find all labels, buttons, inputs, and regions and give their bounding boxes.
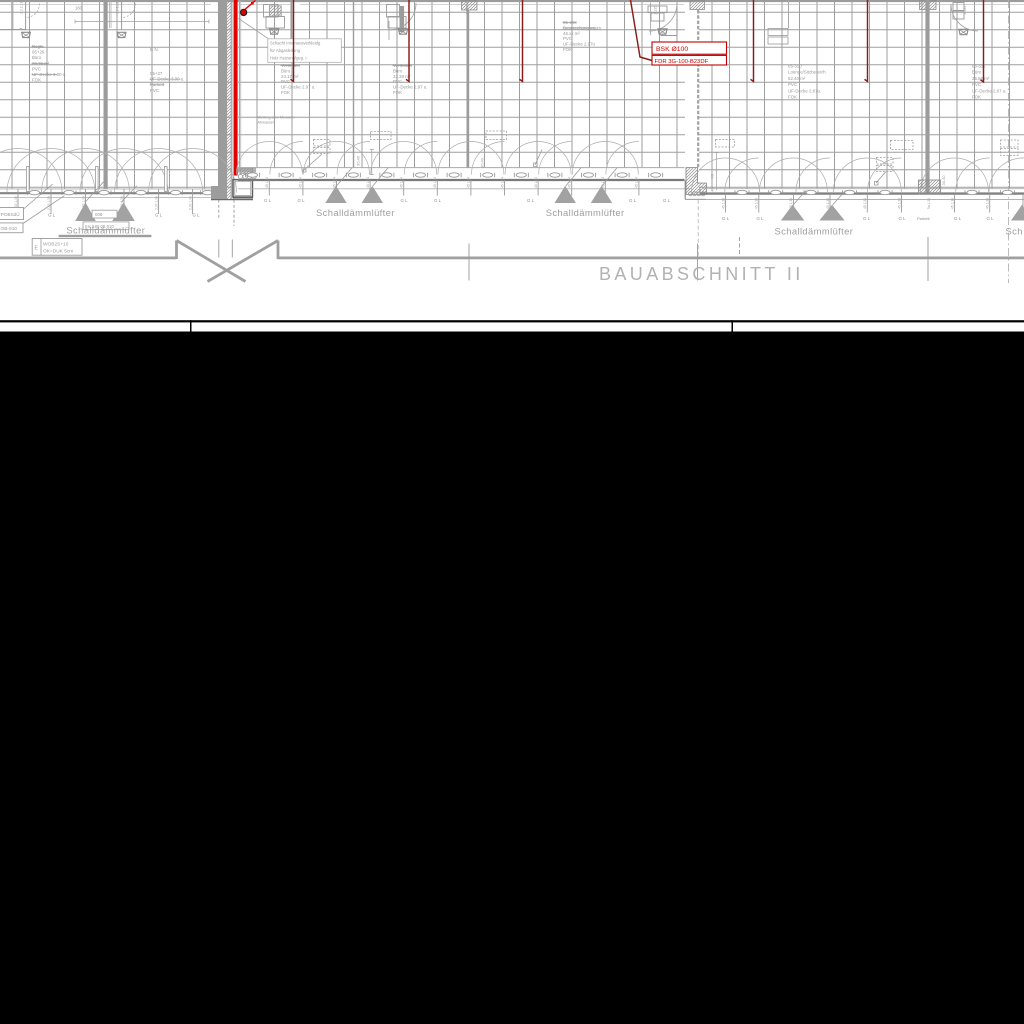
svg-text:GL: GL — [629, 198, 637, 203]
svg-text:Schalldämmlüfter: Schalldämmlüfter — [546, 207, 625, 218]
svg-text:0,0 2,135: 0,0 2,135 — [116, 0, 120, 14]
svg-text:45 1,34: 45 1,34 — [986, 198, 990, 209]
svg-text:BSK Ø100: BSK Ø100 — [656, 46, 688, 53]
svg-text:30,40: 30,40 — [941, 175, 946, 186]
svg-text:45 1,34: 45 1,34 — [400, 177, 404, 188]
svg-text:160: 160 — [75, 6, 83, 11]
svg-text:30,40: 30,40 — [480, 157, 485, 168]
svg-text:GL: GL — [757, 216, 765, 221]
svg-text:45 1,34: 45 1,34 — [500, 177, 504, 188]
svg-text:2,135: 2,135 — [466, 6, 470, 15]
svg-text:GL: GL — [155, 212, 163, 217]
svg-text:45 1,34: 45 1,34 — [534, 177, 538, 188]
svg-text:45 1,34: 45 1,34 — [568, 177, 572, 188]
svg-text:GL: GL — [298, 198, 306, 203]
svg-text:OB-910: OB-910 — [1, 226, 18, 232]
svg-text:GL: GL — [401, 198, 409, 203]
svg-text:45 1,34: 45 1,34 — [265, 177, 269, 188]
svg-text:OK=DUK 5cm: OK=DUK 5cm — [43, 249, 73, 255]
svg-text:GL: GL — [954, 216, 962, 221]
svg-text:Parkett: Parkett — [917, 216, 931, 221]
svg-text:45 1,34: 45 1,34 — [366, 177, 370, 188]
svg-text:GL: GL — [863, 216, 871, 221]
svg-text:GL: GL — [193, 212, 201, 217]
svg-text:2,33 1,39: 2,33 1,39 — [47, 196, 51, 210]
svg-text:45 1,34: 45 1,34 — [897, 198, 901, 209]
svg-text:008: 008 — [95, 212, 103, 217]
svg-text:GL: GL — [434, 198, 442, 203]
svg-text:45 1,34: 45 1,34 — [721, 198, 725, 209]
svg-text:WOB2S+10: WOB2S+10 — [43, 241, 69, 247]
svg-text:ƤOBSdÜ: ƤOBSdÜ — [1, 211, 20, 217]
svg-text:GL: GL — [527, 198, 535, 203]
svg-text:45 1,34: 45 1,34 — [950, 198, 954, 209]
svg-text:5a 1,34: 5a 1,34 — [927, 198, 931, 209]
svg-text:GL: GL — [663, 198, 671, 203]
svg-text:45 1,34: 45 1,34 — [863, 198, 867, 209]
svg-text:GL: GL — [899, 216, 907, 221]
svg-text:2,33 1,39: 2,33 1,39 — [154, 196, 158, 210]
svg-text:GL: GL — [722, 216, 730, 221]
svg-text:45 1,34: 45 1,34 — [299, 177, 303, 188]
svg-text:45 1,34: 45 1,34 — [433, 177, 437, 188]
svg-text:45 1,34: 45 1,34 — [467, 177, 471, 188]
svg-text:45 1,34: 45 1,34 — [635, 177, 639, 188]
svg-text:Schalldämmlüfter: Schalldämmlüfter — [775, 226, 854, 237]
svg-text:30,40: 30,40 — [356, 155, 361, 166]
svg-text:96: 96 — [710, 173, 715, 178]
svg-text:40: 40 — [710, 187, 715, 192]
svg-text:FDR 3G-100-B23DF: FDR 3G-100-B23DF — [655, 59, 709, 65]
svg-text:45 1,34: 45 1,34 — [755, 198, 759, 209]
svg-text:GL: GL — [264, 198, 272, 203]
svg-text:2,135: 2,135 — [963, 6, 967, 15]
svg-text:BAUABSCHNITT II: BAUABSCHNITT II — [599, 264, 804, 284]
svg-text:2,135: 2,135 — [654, 6, 658, 15]
svg-text:Schalldämmlüfter: Schalldämmlüfter — [316, 207, 395, 218]
svg-text:Sch: Sch — [1006, 226, 1023, 237]
svg-text:GL: GL — [48, 212, 56, 217]
svg-text:Schalldämmlüfter: Schalldämmlüfter — [66, 225, 145, 236]
svg-text:45 1,34: 45 1,34 — [826, 198, 830, 209]
svg-text:GL: GL — [987, 216, 995, 221]
svg-text:0,0 2,135: 0,0 2,135 — [20, 0, 24, 14]
svg-text:B N: B N — [150, 47, 158, 52]
svg-text:2,33 1,39: 2,33 1,39 — [188, 196, 192, 210]
